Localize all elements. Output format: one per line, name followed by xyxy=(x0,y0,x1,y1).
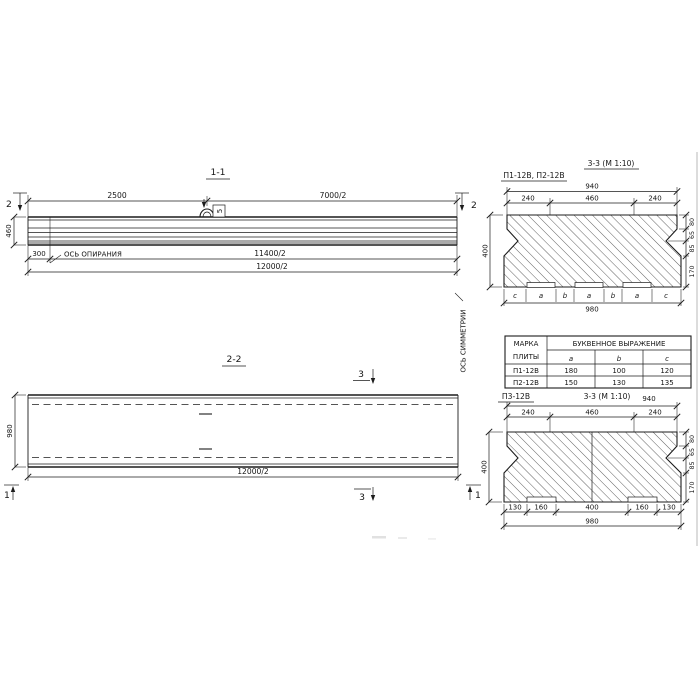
s33bot-dim-400-mid: 400 xyxy=(585,504,598,512)
s33top-plate-1 xyxy=(527,283,555,288)
s33bot-dim-80: 80 xyxy=(689,435,696,443)
table-header-marka: МАРКА xyxy=(514,340,539,348)
s33top-dim-240-r: 240 xyxy=(648,195,661,203)
s33bot-dim-240-r: 240 xyxy=(648,409,661,417)
s33bot-dim-130-l: 130 xyxy=(508,504,521,512)
dim-980-plan: 980 xyxy=(6,424,14,437)
row2-b: 130 xyxy=(612,379,625,387)
s33bot-dim-130-r: 130 xyxy=(662,504,675,512)
section-2-2-title: 2-2 xyxy=(226,354,241,365)
s33top-plate-2 xyxy=(575,283,603,288)
s33top-dim-400: 400 xyxy=(482,244,490,257)
table-header-plity: ПЛИТЫ xyxy=(513,353,539,361)
row2-a: 150 xyxy=(564,379,577,387)
dim-height-460: 460 xyxy=(5,224,13,237)
letter-b-2: b xyxy=(611,292,616,300)
dim-7000-2: 7000/2 xyxy=(320,191,347,200)
s33bot-plate-1 xyxy=(527,497,556,502)
s33top-dim-80: 80 xyxy=(689,218,696,226)
letter-a-2: a xyxy=(587,292,591,300)
dim-300: 300 xyxy=(32,250,45,258)
dim-12000-2: 12000/2 xyxy=(256,262,288,271)
s33bot-dim-85: 85 xyxy=(689,461,696,469)
s33bot-mark-label: П3-12В xyxy=(502,392,530,401)
bearing-axis-label: ОСЬ ОПИРАНИЯ xyxy=(64,251,122,259)
cut-label-1-right: 1 xyxy=(475,490,481,501)
s33top-cross-section xyxy=(504,215,681,287)
section-1-1-title: 1-1 xyxy=(210,167,225,178)
dim-2500: 2500 xyxy=(107,191,126,200)
s33top-dim-980: 980 xyxy=(585,306,598,314)
letter-a-3: a xyxy=(635,292,639,300)
s33bot-title: 3-3 (М 1:10) xyxy=(584,392,631,401)
cut-label-2-right: 2 xyxy=(471,200,477,211)
s33bot-dim-65: 65 xyxy=(689,448,696,456)
row1-b: 100 xyxy=(612,367,625,375)
s33top-dim-170: 170 xyxy=(689,265,696,277)
letter-c-2: c xyxy=(664,292,668,300)
s33bot-dim-940: 940 xyxy=(642,395,655,403)
cut-label-3-bottom: 3 xyxy=(359,492,365,503)
s33top-dim-460: 460 xyxy=(585,195,598,203)
row2-c: 135 xyxy=(660,379,673,387)
s33bot-dim-160-r: 160 xyxy=(635,504,648,512)
s33bot-plate-2 xyxy=(628,497,657,502)
s33top-dim-85: 85 xyxy=(689,244,696,252)
dim-12000-2-plan: 12000/2 xyxy=(237,467,269,476)
row2-mark: П2-12В xyxy=(513,379,539,387)
s33top-dim-940: 940 xyxy=(585,183,598,191)
s33bot-dim-980: 980 xyxy=(585,518,598,526)
symmetry-axis-label: ОСЬ СИММЕТРИИ xyxy=(460,309,468,372)
letter-b-1: b xyxy=(563,292,568,300)
table-col-a: a xyxy=(569,355,573,363)
s33top-marks-label: П1-12В, П2-12В xyxy=(503,171,564,180)
s33top-dim-240-l: 240 xyxy=(521,195,534,203)
s33top-title: 3-3 (М 1:10) xyxy=(588,159,635,168)
cut-label-3-top: 3 xyxy=(358,369,364,380)
row1-a: 180 xyxy=(564,367,577,375)
s33bot-dim-170: 170 xyxy=(689,481,696,493)
s33top-dim-65: 65 xyxy=(689,231,696,239)
s33bot-cross-section xyxy=(504,432,681,502)
s33top-plate-3 xyxy=(623,283,651,288)
s33bot-dim-240-l: 240 xyxy=(521,409,534,417)
letter-a-1: a xyxy=(539,292,543,300)
letter-c-1: c xyxy=(513,292,517,300)
dim-11400-2: 11400/2 xyxy=(254,249,286,258)
table-col-b: b xyxy=(617,355,622,363)
table-header-expression: БУКВЕННОЕ ВЫРАЖЕНИЕ xyxy=(573,340,666,348)
drawing-sheet: 1-1 2500 7000/2 2 2 xyxy=(0,0,700,700)
drawing-canvas: 1-1 2500 7000/2 2 2 xyxy=(0,0,700,700)
row1-mark: П1-12В xyxy=(513,367,539,375)
s33bot-dim-400: 400 xyxy=(481,460,489,473)
s33bot-dim-160-l: 160 xyxy=(534,504,547,512)
table-col-c: c xyxy=(665,355,669,363)
row1-c: 120 xyxy=(660,367,673,375)
loop-tag-label: 5 xyxy=(216,209,224,213)
s33bot-dim-460: 460 xyxy=(585,409,598,417)
cut-label-2-left: 2 xyxy=(6,199,12,210)
cut-label-1-left: 1 xyxy=(4,490,10,501)
